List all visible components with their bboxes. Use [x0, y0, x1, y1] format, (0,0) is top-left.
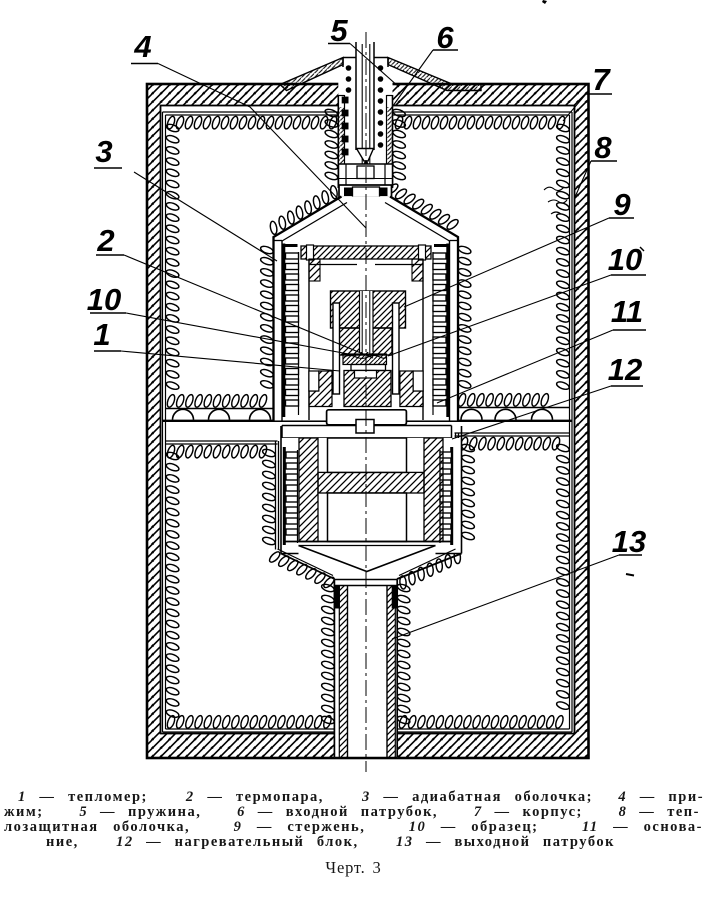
svg-text:4: 4 — [133, 29, 151, 64]
svg-text:3: 3 — [95, 134, 112, 169]
svg-text:1: 1 — [93, 317, 110, 352]
svg-text:7: 7 — [592, 62, 611, 97]
svg-text:11: 11 — [611, 294, 643, 329]
svg-text:13: 13 — [612, 524, 646, 559]
svg-text:8: 8 — [594, 130, 612, 165]
svg-text:9: 9 — [613, 187, 631, 222]
svg-text:10: 10 — [608, 242, 642, 277]
svg-text:2: 2 — [96, 223, 114, 258]
svg-text:10: 10 — [87, 282, 121, 317]
svg-text:12: 12 — [608, 352, 642, 387]
